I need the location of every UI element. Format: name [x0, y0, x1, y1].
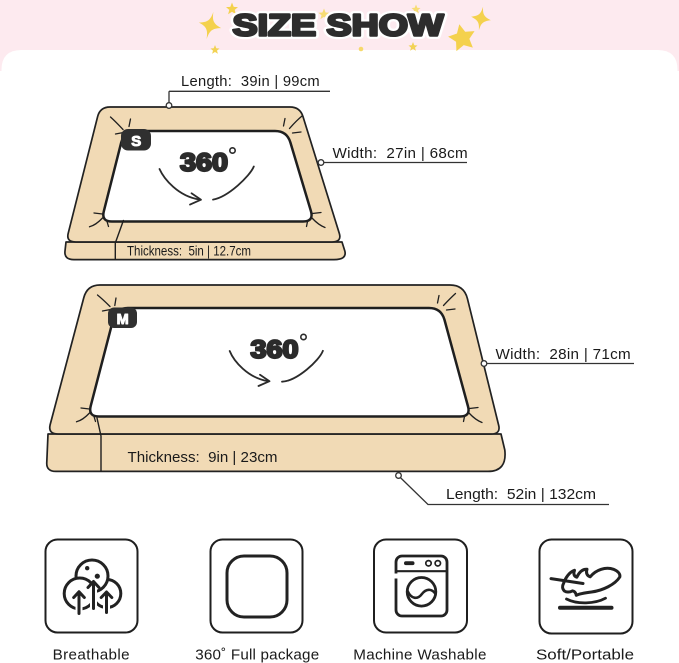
svg-text:Soft/Portable: Soft/Portable: [536, 647, 634, 663]
svg-text:Width: 28in | 71cm: Width: 28in | 71cm: [496, 346, 631, 363]
svg-text:360: 360: [180, 149, 228, 177]
svg-text:360: 360: [251, 336, 299, 364]
svg-text:Thickness: 9in | 23cm: Thickness: 9in | 23cm: [128, 449, 278, 466]
svg-text:Width: 27in | 68cm: Width: 27in | 68cm: [333, 145, 468, 162]
svg-text:Breathable: Breathable: [53, 647, 130, 663]
svg-text:Thickness: 5in | 12.7cm: Thickness: 5in | 12.7cm: [127, 244, 251, 259]
svg-text:Machine Washable: Machine Washable: [353, 647, 486, 663]
svg-text:M: M: [117, 312, 129, 328]
svg-text:Length: 39in | 99cm: Length: 39in | 99cm: [181, 73, 320, 90]
svg-text:S: S: [131, 133, 141, 150]
svg-text:Length: 52in | 132cm: Length: 52in | 132cm: [446, 486, 596, 503]
svg-text:360˚ Full package: 360˚ Full package: [195, 647, 319, 663]
svg-text:SIZE SHOW: SIZE SHOW: [233, 8, 445, 43]
